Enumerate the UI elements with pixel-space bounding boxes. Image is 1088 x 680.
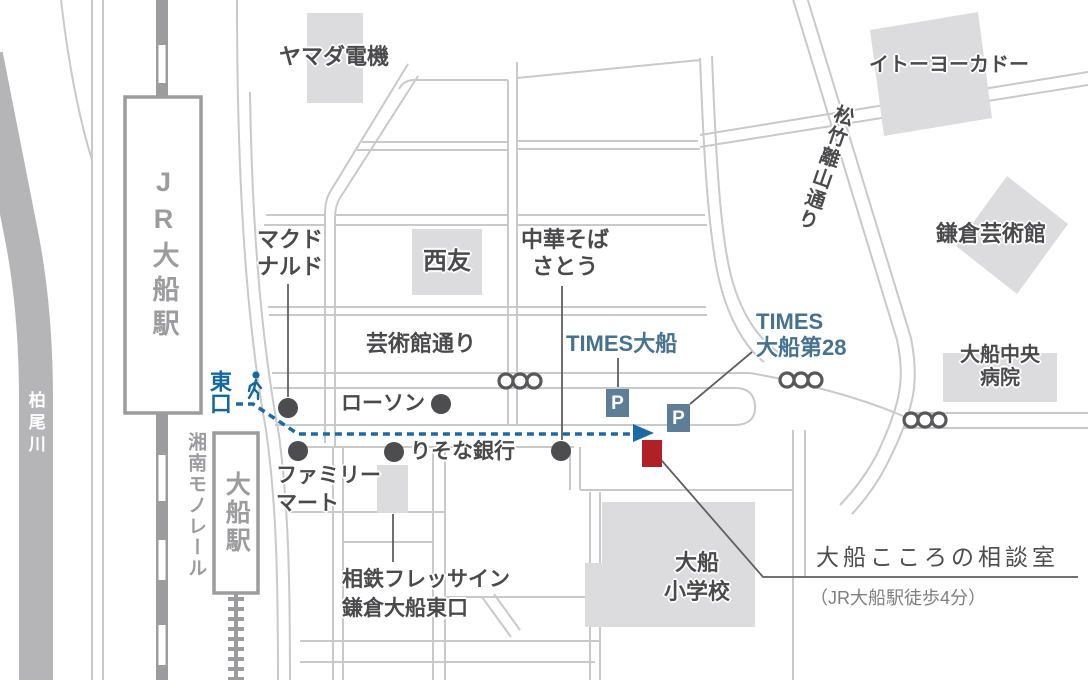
dot-mcdonalds xyxy=(278,398,298,418)
ofuna-elementary-label: 大船 小学校 xyxy=(652,548,742,606)
destination-walk-note: （JR大船駅徒歩4分） xyxy=(810,584,986,610)
lawson-label: ローソン xyxy=(341,391,425,417)
sotetsu-fresa-inn-label: 相鉄フレッサイン 鎌倉大船東口 xyxy=(342,565,510,623)
monorail-station-label-box: 大船駅 xyxy=(214,433,258,593)
parking-icon-times-ofuna: P xyxy=(606,389,629,417)
yamada-denki-label: ヤマダ電機 xyxy=(279,44,389,71)
destination-marker xyxy=(642,440,662,467)
risona-bank-label: りそな銀行 xyxy=(410,439,515,465)
jr-station-label-box: JR大船駅 xyxy=(125,97,201,413)
dot-lawson xyxy=(431,394,451,414)
leader-times-28 xyxy=(690,352,752,404)
destination-title: 大船こころの相談室 xyxy=(816,538,1059,572)
jr-station-label: JR大船駅 xyxy=(147,167,180,343)
times-ofuna-28-label: TIMES 大船第28 xyxy=(756,309,846,361)
monorail-line-label: 湘南モノレール xyxy=(184,432,207,579)
dot-family-mart xyxy=(288,441,308,461)
parking-icon-times-28: P xyxy=(667,404,690,432)
dot-chuka-soba xyxy=(551,441,571,461)
seiyu-label: 西友 xyxy=(412,247,482,276)
building-sotetsu-fresa-inn xyxy=(377,465,408,513)
access-map: 柏尾川 JR大船駅 湘南モノレール 大船駅 東口 ヤマダ電機 イトーヨーカドー … xyxy=(0,0,1088,680)
east-exit-label: 東口 xyxy=(205,370,232,414)
river-band xyxy=(0,55,36,680)
geijutsukan-street-label: 芸術館通り xyxy=(366,331,476,358)
river-label: 柏尾川 xyxy=(24,391,45,457)
route-arrow xyxy=(633,424,654,442)
walker-icon xyxy=(249,371,261,399)
chuka-soba-label: 中華そば さとう xyxy=(512,226,618,280)
mcdonalds-label: マクド ナルド xyxy=(257,226,323,280)
buildings xyxy=(307,12,1068,627)
monorail-station-label: 大船駅 xyxy=(221,471,252,555)
kamakura-arts-hall-label: 鎌倉芸術館 xyxy=(936,221,1046,248)
hospital-label: 大船中央 病院 xyxy=(943,344,1057,390)
ito-yokado-label: イトーヨーカドー xyxy=(869,53,1029,77)
times-ofuna-label: TIMES大船 xyxy=(566,331,677,358)
traffic-lights xyxy=(499,373,946,427)
family-mart-label: ファミリー マート xyxy=(276,462,381,518)
dot-risona-bank xyxy=(384,442,404,462)
